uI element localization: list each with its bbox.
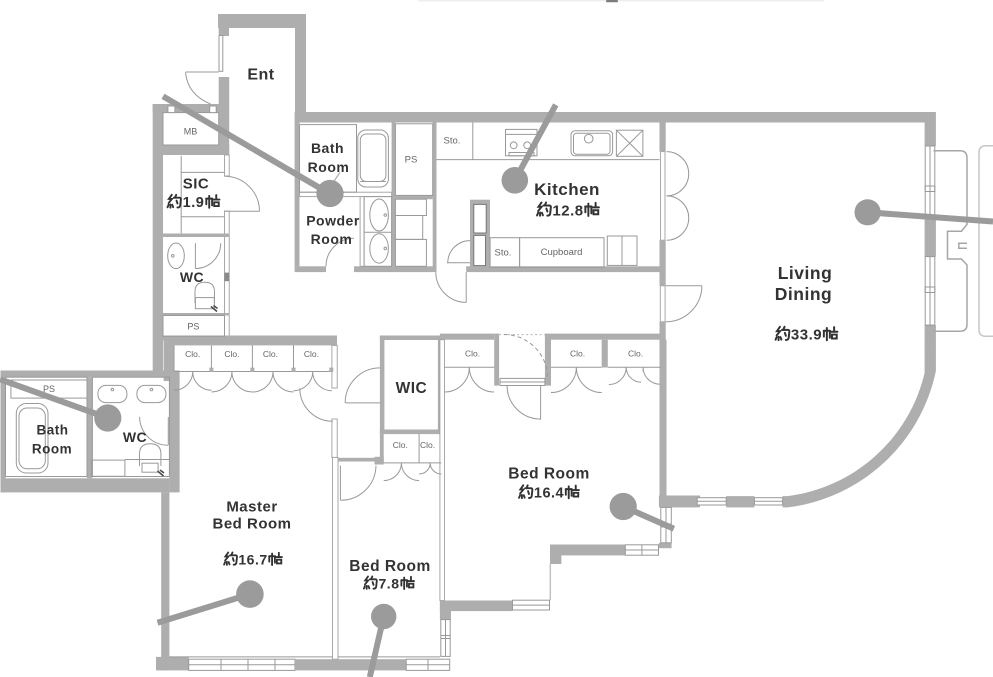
svg-text:Clo.: Clo. bbox=[420, 440, 435, 450]
svg-text:MB: MB bbox=[184, 126, 198, 136]
svg-text:12.8: 12.8 bbox=[552, 202, 583, 219]
svg-text:Powder: Powder bbox=[306, 212, 360, 228]
svg-text:1.9: 1.9 bbox=[183, 195, 205, 211]
svg-text:Clo.: Clo. bbox=[263, 349, 278, 359]
svg-text:Bed Room: Bed Room bbox=[508, 465, 590, 482]
svg-text:WC: WC bbox=[123, 429, 147, 445]
svg-text:WC: WC bbox=[180, 269, 204, 285]
svg-text:33.9: 33.9 bbox=[791, 327, 822, 344]
svg-text:SIC: SIC bbox=[183, 176, 210, 193]
svg-text:Clo.: Clo. bbox=[185, 349, 200, 359]
svg-text:Kitchen: Kitchen bbox=[534, 180, 600, 199]
svg-text:Dining: Dining bbox=[775, 284, 832, 304]
svg-text:16.7: 16.7 bbox=[238, 552, 267, 568]
svg-text:Clo.: Clo. bbox=[570, 349, 585, 359]
svg-text:Clo.: Clo. bbox=[304, 349, 319, 359]
svg-text:Sto.: Sto. bbox=[444, 135, 461, 146]
svg-text:Cupboard: Cupboard bbox=[541, 247, 583, 258]
svg-text:PS: PS bbox=[187, 322, 199, 332]
svg-text:Sto.: Sto. bbox=[495, 248, 512, 259]
svg-text:Master: Master bbox=[226, 499, 277, 516]
svg-text:Room: Room bbox=[32, 442, 72, 457]
svg-text:PS: PS bbox=[43, 384, 55, 394]
svg-text:Bath: Bath bbox=[37, 423, 69, 438]
svg-text:Bed Room: Bed Room bbox=[213, 516, 292, 533]
svg-text:7.8: 7.8 bbox=[379, 576, 400, 592]
svg-text:Bed Room: Bed Room bbox=[349, 558, 431, 575]
svg-text:PS: PS bbox=[405, 154, 418, 165]
svg-text:Clo.: Clo. bbox=[628, 349, 643, 359]
svg-text:16.4: 16.4 bbox=[534, 486, 564, 502]
svg-text:Ent: Ent bbox=[247, 66, 274, 83]
svg-text:Clo.: Clo. bbox=[224, 349, 239, 359]
svg-text:Bath: Bath bbox=[311, 140, 344, 156]
svg-text:WIC: WIC bbox=[396, 380, 428, 397]
svg-text:Clo.: Clo. bbox=[465, 349, 480, 359]
svg-text:Room: Room bbox=[308, 159, 350, 175]
svg-text:Clo.: Clo. bbox=[393, 440, 408, 450]
svg-text:Room: Room bbox=[311, 231, 353, 247]
svg-text:Living: Living bbox=[778, 263, 833, 283]
